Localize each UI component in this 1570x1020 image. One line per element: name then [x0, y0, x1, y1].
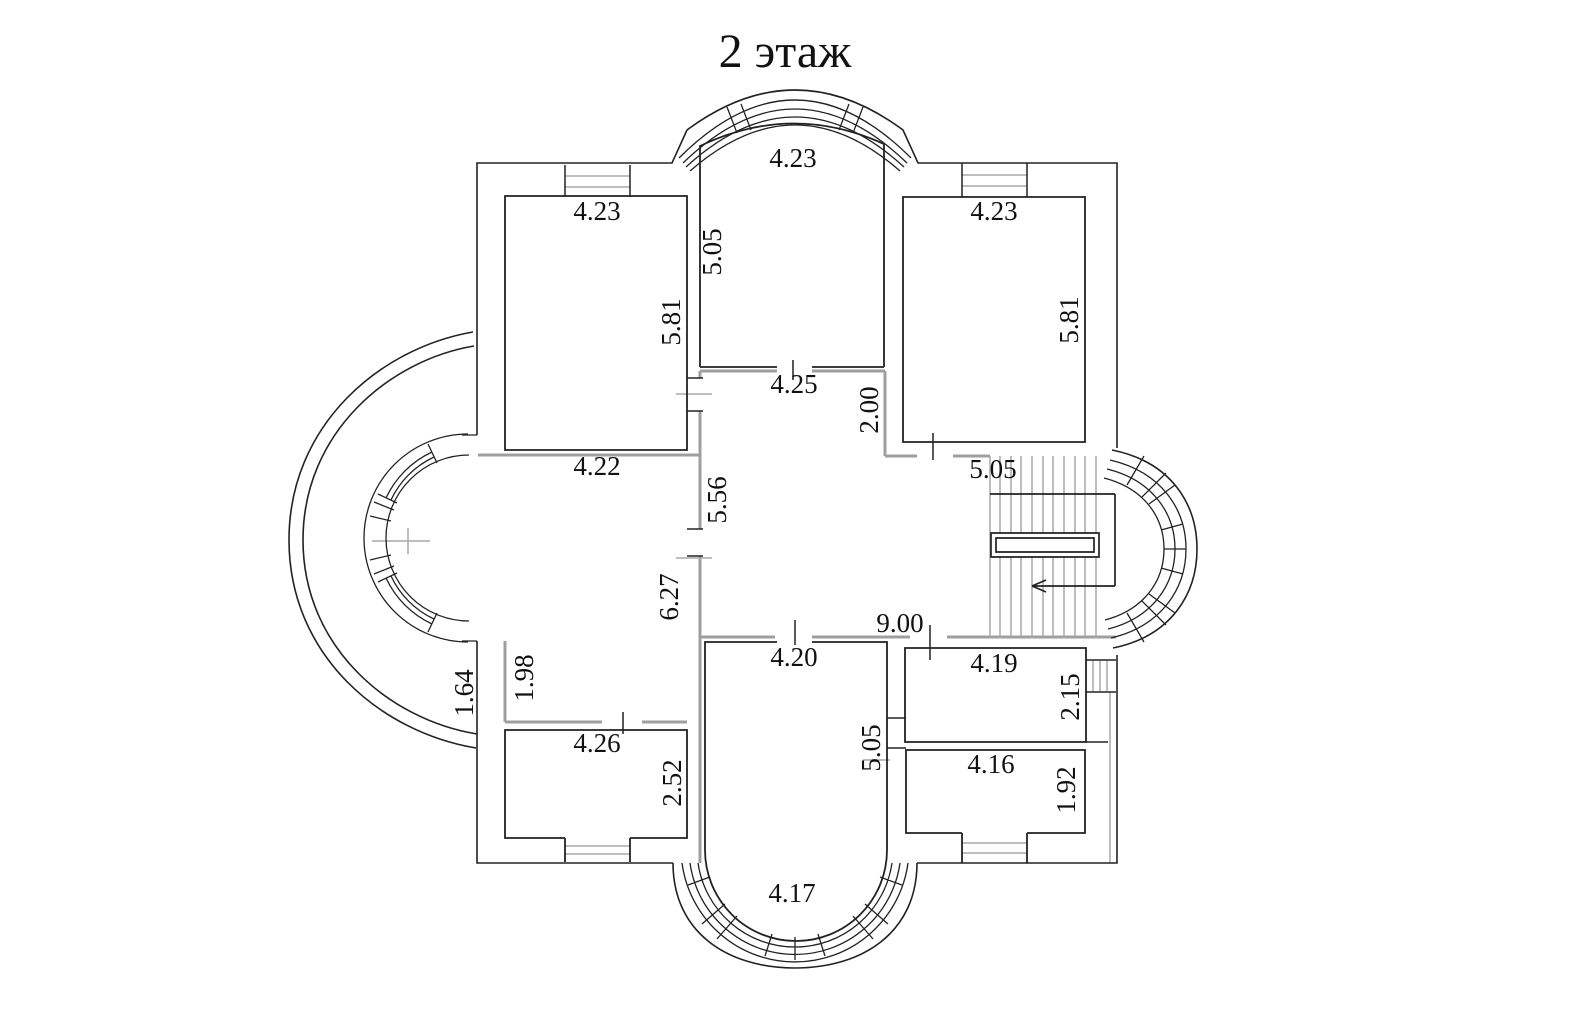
dimension-label: 5.81: [1054, 296, 1084, 343]
dimension-label: 4.17: [768, 878, 815, 908]
left-bay-window: [364, 434, 477, 642]
dimension-label: 1.92: [1051, 766, 1081, 813]
floor-plan-page: 2 этаж: [0, 0, 1570, 1020]
dimension-label: 9.00: [876, 608, 923, 638]
dimension-label: 1.64: [449, 669, 479, 717]
dimension-label: 4.23: [769, 143, 816, 173]
dimension-label: 5.56: [702, 476, 732, 523]
dimension-label: 4.16: [967, 749, 1014, 779]
dimension-label: 4.19: [970, 648, 1017, 678]
dimension-label: 5.05: [969, 454, 1016, 484]
dimension-label: 4.20: [770, 642, 817, 672]
dimension-label: 4.25: [770, 369, 817, 399]
dimension-label: 4.22: [573, 451, 620, 481]
dimension-label: 4.23: [573, 196, 620, 226]
bay-outer-arcs: [289, 332, 1197, 968]
dimension-label: 6.27: [654, 573, 684, 620]
stair-railing: [991, 533, 1099, 557]
stair-direction-arrow: [1032, 580, 1115, 592]
dimension-label: 5.81: [656, 298, 686, 345]
dimension-label: 5.05: [697, 228, 727, 275]
dimension-label: 2.52: [657, 759, 687, 806]
dimension-label: 5.05: [856, 724, 886, 771]
dimension-label: 4.26: [573, 728, 620, 758]
outer-walls: [289, 90, 1197, 968]
dimension-label: 2.15: [1055, 673, 1085, 720]
floor-plan-drawing: 4.235.054.235.814.235.814.252.005.054.22…: [0, 0, 1570, 1020]
dimension-label: 1.98: [509, 654, 539, 701]
dimension-label: 4.23: [970, 196, 1017, 226]
dimension-label: 2.00: [854, 386, 884, 433]
